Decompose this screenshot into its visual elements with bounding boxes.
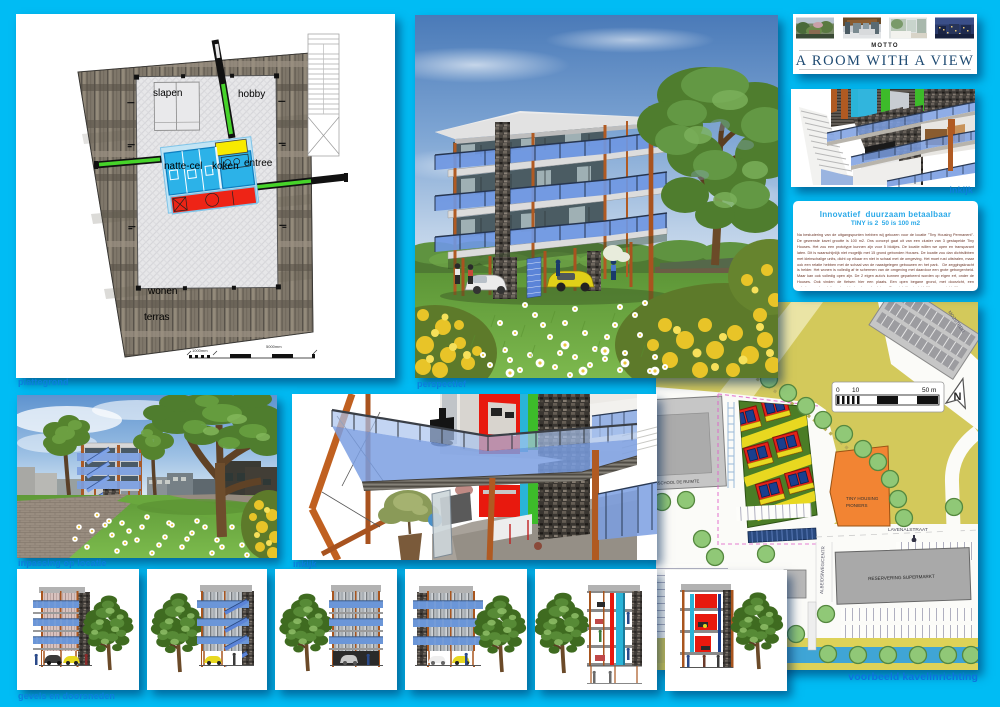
svg-text:hobby: hobby	[238, 89, 265, 100]
svg-text:1000mm: 1000mm	[192, 348, 208, 353]
svg-text:terras: terras	[144, 312, 170, 323]
svg-text:MOTTO: MOTTO	[871, 43, 899, 49]
svg-text:entree: entree	[244, 158, 273, 169]
svg-text:N: N	[954, 391, 962, 403]
svg-text:slapen: slapen	[153, 88, 182, 99]
svg-text:5000mm: 5000mm	[266, 344, 282, 349]
svg-text:PIONIERS: PIONIERS	[846, 503, 868, 508]
svg-text:TINY HOUSING: TINY HOUSING	[846, 496, 879, 501]
svg-text:koken: koken	[212, 161, 239, 172]
svg-text:wonen: wonen	[147, 286, 177, 297]
svg-text:10: 10	[852, 387, 860, 394]
svg-text:natte-cel: natte-cel	[164, 161, 202, 172]
svg-text:LAVENALSTRAAT: LAVENALSTRAAT	[888, 527, 928, 533]
svg-text:0: 0	[836, 387, 840, 394]
svg-text:50 m: 50 m	[922, 387, 936, 394]
svg-text:A ROOM WITH A VIEW: A ROOM WITH A VIEW	[796, 53, 975, 69]
